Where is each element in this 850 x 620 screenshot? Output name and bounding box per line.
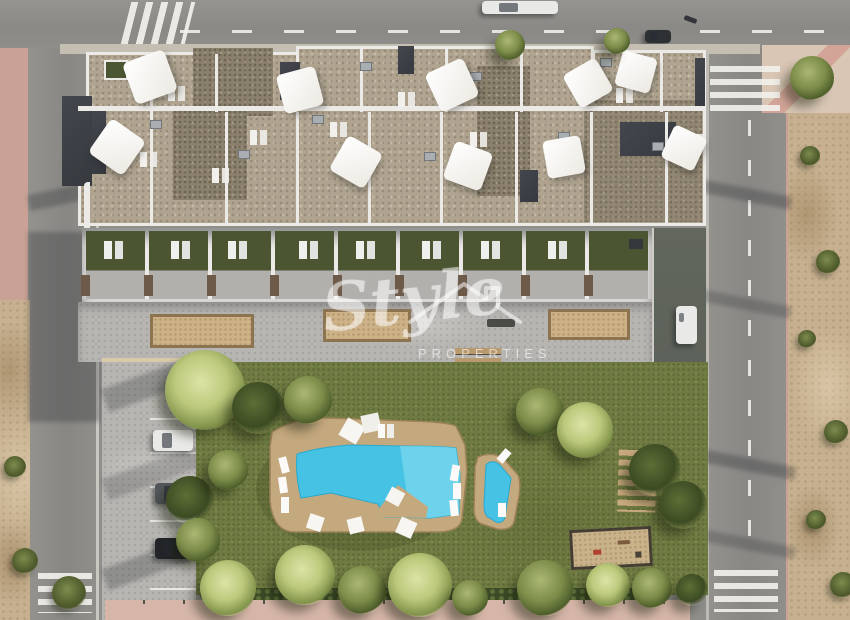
sun-lounger (498, 503, 506, 517)
roof-wall-divider (515, 112, 518, 224)
roof-lounger (250, 130, 257, 145)
roof-lounger (398, 92, 405, 107)
tree (632, 568, 672, 608)
roof-wall-divider (665, 112, 668, 224)
tree (208, 450, 248, 490)
roof-lounger (470, 132, 477, 147)
roof-lounger (330, 122, 337, 137)
roof-stairwell (695, 58, 705, 110)
play-equipment (618, 540, 630, 545)
tree (338, 566, 386, 614)
white-van (482, 1, 558, 14)
tree (557, 402, 613, 458)
street-palm (495, 30, 525, 60)
ac-unit (150, 120, 162, 129)
tree (388, 553, 452, 617)
ac-unit (424, 152, 436, 161)
tree (200, 560, 256, 616)
bush (676, 574, 708, 606)
tree (176, 518, 220, 562)
roof-stairwell (520, 170, 538, 202)
terrace-unit-utility (589, 231, 648, 299)
vacant-sand-lot (788, 100, 850, 620)
right-road-lane-dashes (748, 120, 751, 560)
roof-lounger (212, 168, 219, 183)
crosswalk-right-top (710, 66, 780, 112)
scrub-bush (800, 146, 820, 166)
watermark-sub: PROPERTIES (418, 346, 552, 361)
planter-bed (150, 314, 254, 348)
play-equipment (593, 550, 601, 555)
bush (452, 580, 488, 616)
palm-tree (232, 382, 284, 434)
roof-wall-divider (215, 54, 218, 112)
tree (517, 560, 573, 616)
terrace-unit (149, 231, 208, 299)
sun-lounger (281, 497, 289, 513)
sun-lounger (449, 500, 459, 517)
tree (275, 545, 335, 605)
sun-lounger (387, 424, 394, 438)
parking-stall-line (150, 588, 196, 590)
tree (166, 476, 214, 524)
tree (659, 481, 707, 529)
ac-unit (600, 58, 612, 67)
scrub-bush (798, 330, 816, 348)
roof-wall-divider (225, 112, 228, 224)
play-equipment (635, 551, 641, 557)
terrace-unit (86, 231, 145, 299)
scrub-bush (52, 576, 86, 610)
tree (586, 563, 630, 607)
watermark-brand: Style (318, 251, 509, 348)
ac-unit (360, 62, 372, 71)
watermark: Style PROPERTIES (322, 252, 572, 370)
scrub-bush (12, 548, 38, 574)
left-sidewalk (0, 48, 28, 303)
scrub-bush (806, 510, 826, 530)
roof-wall-divider (440, 112, 443, 224)
terrace-unit (212, 231, 271, 299)
roof-stairwell (398, 46, 414, 74)
crosswalk-right-bottom (714, 570, 778, 612)
street-palm (604, 28, 630, 54)
sun-lounger (453, 483, 461, 499)
roof-wall-divider (520, 48, 523, 112)
crosswalk-top (121, 2, 195, 44)
ac-unit (238, 150, 250, 159)
parked-car-white (153, 430, 193, 451)
roof-wall-divider (360, 48, 363, 112)
aerial-property-render: Style PROPERTIES (0, 0, 850, 620)
roof-wall-divider (590, 112, 593, 224)
roof-wall-divider (78, 106, 706, 111)
scrub-bush (830, 572, 850, 598)
white-car-driveway (676, 306, 697, 344)
dark-car (645, 30, 671, 43)
roof-lounger (616, 88, 623, 103)
scrub-bush (4, 456, 26, 478)
roof-wall-divider (660, 52, 663, 112)
roof-wall-divider (296, 112, 299, 224)
shade-sail (542, 135, 586, 179)
tree (284, 376, 332, 424)
roof-dark-gravel (173, 110, 247, 200)
roof-lounger (140, 152, 147, 167)
scrub-bush (824, 420, 848, 444)
sun-lounger (378, 424, 385, 438)
ac-unit (312, 115, 324, 124)
corner-palm (790, 56, 834, 100)
scrub-bush (816, 250, 840, 274)
